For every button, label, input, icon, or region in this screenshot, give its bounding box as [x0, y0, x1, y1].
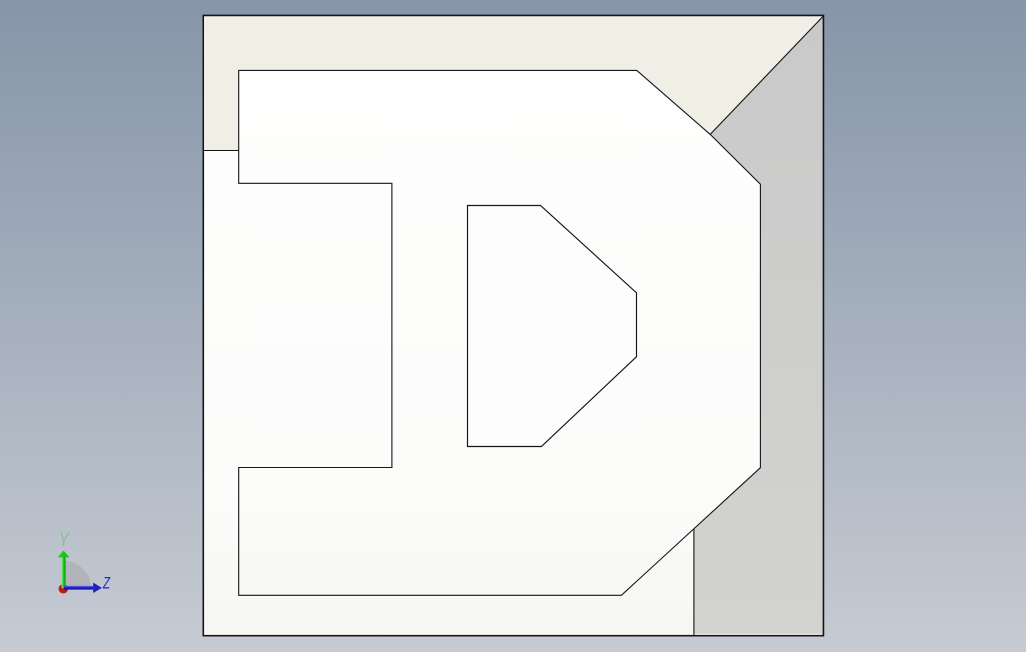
svg-text:Y: Y	[59, 528, 70, 550]
svg-text:Z: Z	[102, 575, 111, 594]
